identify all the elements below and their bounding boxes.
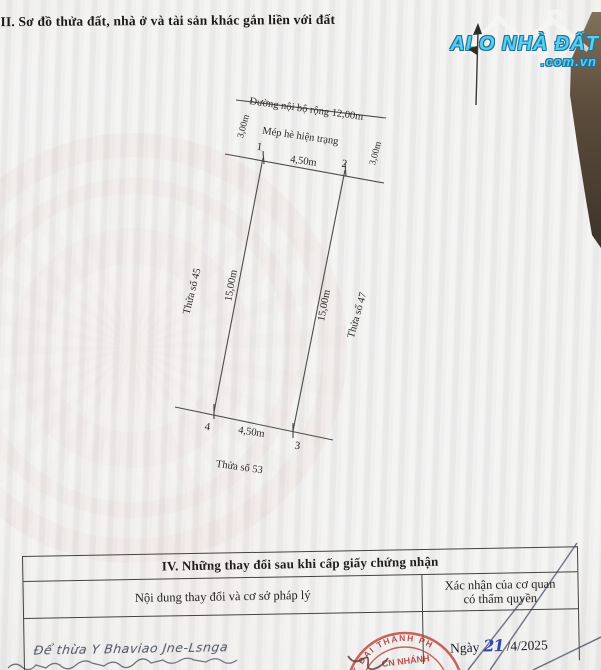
corner-tick-1 (263, 151, 264, 164)
date-prefix: Ngày (450, 640, 480, 656)
curb-label: Mép hè hiện trạng (262, 126, 340, 148)
width-bottom-label: 4,50m (237, 425, 265, 440)
date-day-handwritten: 21 (479, 636, 507, 656)
setback-left-label: 3,00m (236, 113, 252, 139)
corner-label-2: 2 (341, 158, 348, 171)
setback-right-label: 3,00m (368, 140, 384, 166)
parcel-below-label: Thửa số 53 (215, 459, 263, 476)
depth-right-label: 15,00m (316, 289, 333, 322)
col-header-confirm-line2: có thẩm quyền (463, 591, 537, 607)
parcel-left-label: Thửa số 45 (182, 267, 204, 315)
date-rest: /4/2025 (506, 637, 548, 653)
stamp-center-text: CN NHÁNH (381, 653, 430, 669)
land-certificate-photo: III. Sơ đồ thửa đất, nhà ở và tài sản kh… (0, 0, 601, 670)
corner-label-1: 1 (256, 141, 263, 154)
col-header-confirm: Xác nhận của cơ quan có thẩm quyền (422, 572, 578, 611)
corner-label-4: 4 (204, 421, 212, 434)
corner-label-3: 3 (294, 440, 302, 453)
depth-left-label: 15,00m (223, 269, 239, 302)
parcel-left-boundary (214, 158, 263, 412)
road-label: Đường nội bộ rộng 12,00m (249, 96, 364, 123)
parcel-right-label: Thửa số 47 (346, 291, 370, 339)
col-header-content: Nội dung thay đổi và cơ sở pháp lý (23, 575, 423, 618)
north-arrow-icon (468, 23, 482, 105)
col-header-confirm-line1: Xác nhận của cơ quan (445, 576, 556, 592)
date-line: Ngày21/4/2025 (450, 634, 548, 656)
